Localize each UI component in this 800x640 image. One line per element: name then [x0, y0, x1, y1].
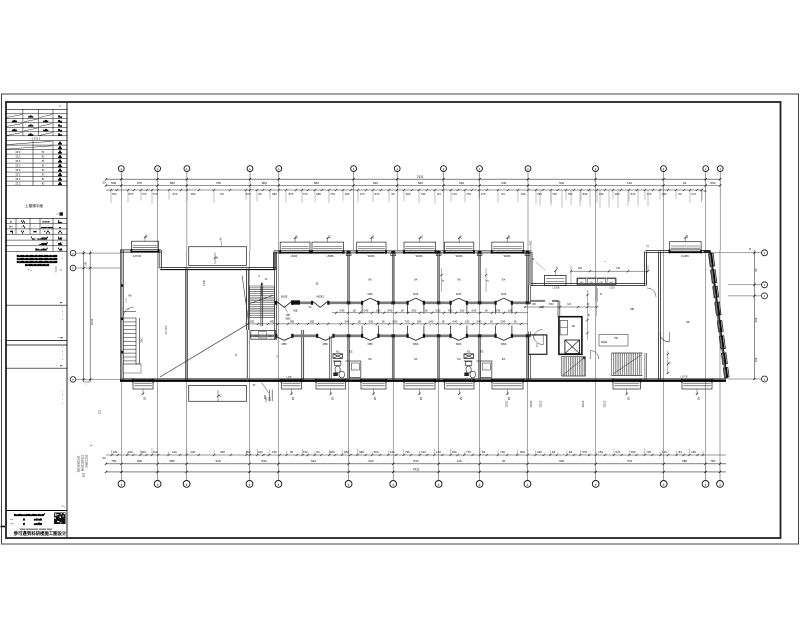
svg-text:▫▫: ▫▫	[604, 261, 606, 263]
svg-text:L3Œ: L3Œ	[286, 376, 292, 379]
svg-text:5Œ: 5Œ	[310, 319, 315, 323]
svg-text:9X: 9X	[414, 357, 418, 361]
svg-text:900: 900	[141, 450, 146, 454]
svg-text:50: 50	[258, 192, 262, 196]
svg-text:L5459: L5459	[326, 254, 334, 258]
svg-text:₂: ₂	[354, 367, 355, 370]
svg-text:570: 570	[289, 192, 294, 196]
svg-text:0ΣΣ: 0ΣΣ	[83, 472, 86, 477]
svg-text:570: 570	[631, 192, 636, 196]
svg-text:▅▆▅▆: ▅▆▅▆	[33, 518, 43, 521]
svg-text:M4Σ: M4Σ	[413, 292, 419, 296]
svg-text:₂: ₂	[485, 367, 486, 370]
svg-text:▅▆▇▆: ▅▆▇▆	[33, 521, 43, 525]
svg-text:16: 16	[424, 308, 428, 312]
svg-text:▆▅▆▆▅▆▅▆▆▅▆▅▆: ▆▅▆▆▅▆▅▆▆▅▆▅▆	[24, 263, 49, 266]
svg-text:W459: W459	[456, 254, 463, 258]
svg-text:W459: W459	[368, 254, 375, 258]
svg-text:9Σ: 9Σ	[686, 320, 690, 324]
svg-text:730: 730	[552, 192, 557, 196]
svg-text:ΣΣ Σ: ΣΣ Σ	[15, 156, 21, 159]
svg-text:50: 50	[391, 192, 395, 196]
svg-text:730: 730	[500, 450, 505, 454]
svg-text:7411: 7411	[413, 468, 420, 472]
svg-text:M4Σ: M4Σ	[501, 292, 507, 296]
svg-text:84: 84	[482, 450, 486, 454]
svg-text:9X: 9X	[457, 277, 461, 281]
svg-text:Ю₂: Ю₂	[467, 351, 470, 354]
svg-text:L535B: L535B	[553, 286, 560, 289]
svg-text:4X: 4X	[265, 279, 268, 281]
svg-text:4Σ0Σ: 4Σ0Σ	[531, 240, 533, 246]
svg-text:ΣΣ Σ: ΣΣ Σ	[15, 151, 21, 154]
svg-text:940: 940	[330, 450, 335, 454]
svg-text:160: 160	[417, 320, 422, 324]
svg-text:770: 770	[466, 450, 471, 454]
svg-text:XX: XX	[145, 234, 149, 238]
svg-text:XX: XX	[371, 235, 375, 239]
svg-text:1X: 1X	[235, 353, 238, 356]
svg-text:9X: 9X	[502, 357, 506, 361]
svg-text:040: 040	[340, 308, 345, 312]
svg-text:ΣΣΣ: ΣΣΣ	[99, 409, 102, 414]
svg-text:730: 730	[646, 450, 651, 454]
svg-text:◄▪: ◄▪	[59, 300, 63, 304]
svg-text:▄▆▄: ▄▆▄	[28, 115, 34, 118]
svg-text:▫: ▫	[62, 253, 63, 256]
svg-text:70Σ0: 70Σ0	[548, 304, 554, 306]
svg-text:180: 180	[344, 450, 349, 454]
svg-text:140: 140	[457, 459, 462, 463]
svg-text:M5Œ1: M5Œ1	[316, 295, 324, 299]
svg-text:170: 170	[452, 192, 457, 196]
svg-text:580: 580	[314, 181, 319, 185]
svg-text:1B: 1B	[697, 397, 701, 400]
svg-text:▫: ▫	[62, 346, 63, 349]
svg-text:1B: 1B	[507, 397, 511, 400]
svg-text:▄▆▄: ▄▆▄	[12, 120, 18, 123]
svg-text:580: 580	[682, 459, 687, 463]
svg-text:050: 050	[501, 320, 506, 324]
svg-text:7411: 7411	[417, 175, 424, 179]
svg-text:1X36: 1X36	[90, 318, 94, 325]
svg-text:ΣΣ Σ: ΣΣ Σ	[15, 165, 21, 168]
svg-text:9Œ0: 9Œ0	[285, 318, 291, 321]
svg-text:84: 84	[569, 450, 573, 454]
svg-text:1B: 1B	[291, 397, 295, 400]
svg-text:XX: XX	[419, 235, 423, 239]
svg-text:▆▄: ▆▄	[57, 129, 62, 132]
svg-text:M5Œ: M5Œ	[281, 295, 288, 299]
svg-text:770: 770	[153, 192, 158, 196]
svg-text:160: 160	[258, 450, 263, 454]
svg-text:32: 32	[683, 181, 687, 185]
svg-text:◄▪: ◄▪	[59, 363, 63, 367]
svg-text:04Σ: 04Σ	[599, 282, 603, 284]
svg-text:18: 18	[441, 320, 445, 324]
svg-text:1B: 1B	[459, 397, 463, 400]
svg-text:▄▆▄: ▄▆▄	[43, 129, 49, 132]
svg-text:▚▘: ▚▘	[20, 231, 25, 234]
svg-text:▪: ▪	[62, 402, 63, 405]
svg-text:570: 570	[137, 181, 142, 185]
svg-text:Ki05a: Ki05a	[601, 341, 608, 344]
svg-text:600: 600	[111, 181, 116, 185]
svg-text:730: 730	[303, 450, 308, 454]
svg-text:800: 800	[137, 459, 142, 463]
svg-text:160: 160	[345, 192, 350, 196]
svg-text:160: 160	[615, 192, 620, 196]
svg-text:84: 84	[552, 450, 556, 454]
svg-text:940: 940	[537, 450, 542, 454]
svg-text:1B: 1B	[373, 397, 377, 400]
svg-text:▪: ▪	[62, 318, 63, 321]
svg-text:750: 750	[112, 192, 117, 196]
svg-text:9X: 9X	[368, 357, 372, 361]
svg-text:XX: XX	[327, 235, 331, 239]
svg-text:04Σ: 04Σ	[609, 282, 613, 284]
svg-text:Σ0Σ0Σ: Σ0Σ0Σ	[507, 400, 509, 407]
svg-text:▆▄: ▆▄	[57, 124, 62, 127]
svg-text:▫: ▫	[85, 384, 86, 387]
svg-text:M5Σ: M5Σ	[323, 342, 329, 346]
svg-text:160: 160	[537, 192, 542, 196]
svg-text:XŒ: XŒ	[250, 319, 255, 323]
svg-text:ЮΣ: ЮΣ	[480, 351, 484, 354]
svg-text:770: 770	[303, 192, 308, 196]
svg-text:▫: ▫	[62, 354, 63, 357]
svg-text:600: 600	[710, 181, 715, 185]
svg-text:18: 18	[400, 308, 404, 312]
svg-text:050: 050	[412, 308, 417, 312]
svg-text:▪▫▪▫▪: ▪▫▪▫▪	[10, 522, 14, 525]
svg-text:18: 18	[352, 308, 356, 312]
svg-text:ΣΣ Σ: ΣΣ Σ	[15, 160, 21, 163]
svg-text:1B: 1B	[571, 325, 574, 328]
svg-text:140: 140	[421, 450, 426, 454]
svg-text:™₂: ™₂	[61, 505, 65, 509]
svg-text:670: 670	[173, 192, 178, 196]
svg-text:940: 940	[272, 192, 277, 196]
svg-text:1X: 1X	[269, 335, 272, 338]
svg-text:ΣΣ Σ: ΣΣ Σ	[15, 169, 21, 172]
svg-text:84: 84	[678, 450, 682, 454]
svg-text:M5Σ: M5Σ	[501, 342, 507, 346]
svg-text:▝▜: ▝▜	[9, 231, 13, 234]
svg-text:L535: L535	[609, 286, 615, 289]
svg-text:770: 770	[647, 192, 652, 196]
svg-text:120: 120	[172, 450, 177, 454]
svg-text:32: 32	[502, 459, 506, 463]
svg-text:▃▃▃ ▃▃▃: ▃▃▃ ▃▃▃	[40, 226, 53, 229]
svg-text:266: 266	[578, 267, 583, 270]
svg-text:700: 700	[448, 308, 453, 312]
svg-text:04Σ: 04Σ	[590, 282, 594, 284]
svg-text:XX: XX	[507, 235, 511, 239]
svg-text:140: 140	[521, 192, 526, 196]
svg-text:580: 580	[170, 459, 175, 463]
svg-text:M5Σ: M5Σ	[413, 342, 419, 346]
svg-text:▪: ▪	[62, 249, 63, 252]
svg-text:940: 940	[452, 450, 457, 454]
svg-text:⊠⊡: ⊠⊡	[9, 226, 13, 229]
svg-text:140: 140	[662, 192, 667, 196]
svg-text:1B: 1B	[626, 397, 630, 400]
svg-text:▀▀: ▀▀	[33, 230, 37, 234]
svg-text:570: 570	[129, 192, 134, 196]
svg-text:18: 18	[484, 308, 488, 312]
svg-text:B: B	[749, 247, 751, 251]
svg-text:M4Σ: M4Σ	[456, 292, 462, 296]
svg-text:840: 840	[418, 181, 423, 185]
svg-text:160: 160	[272, 450, 277, 454]
svg-text:540: 540	[413, 459, 418, 463]
svg-text:770: 770	[330, 192, 335, 196]
svg-text:▫: ▫	[62, 314, 63, 317]
svg-text:940: 940	[583, 192, 588, 196]
svg-text:750: 750	[111, 459, 116, 463]
svg-text:740: 740	[616, 267, 621, 270]
svg-text:ΣΣ Σ: ΣΣ Σ	[15, 174, 21, 177]
svg-text:200: 200	[406, 192, 411, 196]
svg-text:100: 100	[376, 308, 381, 312]
svg-text:180: 180	[359, 450, 364, 454]
svg-text:24X1: 24X1	[142, 337, 144, 343]
svg-text:▄▆▄: ▄▆▄	[12, 129, 18, 132]
svg-text:160: 160	[662, 450, 667, 454]
svg-text:7—: 7—	[28, 268, 33, 272]
svg-text:18: 18	[357, 320, 361, 324]
svg-text:040: 040	[429, 320, 434, 324]
svg-text:570: 570	[246, 192, 251, 196]
svg-text:XXX: XXX	[266, 397, 268, 402]
svg-text:▪: ▪	[62, 241, 63, 244]
svg-text:▫: ▫	[62, 306, 63, 309]
svg-text:730: 730	[599, 192, 604, 196]
svg-text:M5Σ: M5Σ	[368, 342, 374, 346]
svg-text:ΒΣ0ΣΣΒΣ0ΣΣ: ΒΣ0ΣΣΒΣ0ΣΣ	[81, 454, 85, 471]
svg-text:750: 750	[710, 459, 715, 463]
svg-text:▪: ▪	[62, 310, 63, 313]
svg-text:1X7CR: 1X7CR	[133, 254, 141, 258]
svg-text:180: 180	[316, 192, 321, 196]
svg-text:580: 580	[170, 181, 175, 185]
svg-text:ΣΒΣ0ΣΒΣΣ0Σ: ΣΒΣ0ΣΒΣΣ0Σ	[77, 455, 81, 472]
svg-text:M4Σ: M4Σ	[368, 292, 374, 296]
svg-text:540: 540	[559, 181, 564, 185]
svg-text:M5Σ: M5Σ	[282, 342, 288, 346]
svg-text:XX: XX	[459, 235, 463, 239]
svg-text:540: 540	[477, 320, 482, 324]
svg-text:卫: 卫	[535, 343, 538, 347]
svg-text:570: 570	[582, 450, 587, 454]
svg-text:™: ™	[56, 214, 59, 217]
svg-text:▪◄▪: ▪◄▪	[59, 336, 64, 340]
svg-text:140: 140	[627, 181, 632, 185]
svg-text:158: 158	[754, 357, 758, 362]
svg-text:1B: 1B	[219, 394, 222, 397]
svg-text:730: 730	[421, 192, 426, 196]
svg-text:050: 050	[436, 308, 441, 312]
svg-text:◂: ◂	[90, 444, 91, 447]
svg-text:600: 600	[559, 459, 564, 463]
svg-text:160: 160	[128, 450, 133, 454]
svg-text:16: 16	[381, 320, 385, 324]
svg-text:84: 84	[501, 192, 505, 196]
svg-text:W459: W459	[416, 254, 423, 258]
svg-text:04Σ: 04Σ	[580, 282, 584, 284]
svg-text:9X: 9X	[308, 306, 311, 309]
svg-text:040: 040	[496, 308, 501, 312]
svg-text:540: 540	[459, 181, 464, 185]
svg-text:▪▫▪▪: ▪▫▪▪	[10, 518, 14, 521]
svg-text:670: 670	[375, 192, 380, 196]
svg-text:ΣΣ Σ: ΣΣ Σ	[15, 183, 21, 186]
svg-text:160: 160	[191, 192, 196, 196]
svg-text:200: 200	[190, 450, 195, 454]
svg-text:160: 160	[631, 450, 636, 454]
svg-text:ΣΣ Σ: ΣΣ Σ	[15, 178, 21, 181]
svg-text:ЮΣ: ЮΣ	[349, 351, 353, 354]
svg-text:1X: 1X	[246, 298, 248, 301]
svg-text:▪: ▪	[62, 358, 63, 361]
svg-text:540: 540	[388, 308, 393, 312]
svg-text:▪: ▪	[62, 257, 63, 260]
svg-text:L5CR: L5CR	[291, 254, 298, 258]
svg-text:900: 900	[374, 450, 379, 454]
svg-text:4Œ: 4Œ	[270, 319, 275, 323]
svg-text:2X XXX: 2X XXX	[165, 325, 168, 334]
svg-text:50: 50	[754, 268, 758, 272]
svg-text:9X: 9X	[502, 277, 506, 281]
svg-text:9X: 9X	[457, 357, 461, 361]
svg-text:940: 940	[220, 450, 225, 454]
svg-text:参可遇到科研楼施工图设计: 参可遇到科研楼施工图设计	[14, 530, 67, 537]
svg-text:▆▄: ▆▄	[57, 120, 62, 123]
svg-text:50: 50	[290, 450, 294, 454]
svg-text:940: 940	[501, 181, 506, 185]
svg-text:9X: 9X	[414, 277, 418, 281]
svg-text:Σ0ΒΣΣΣ0Σ: Σ0ΒΣΣΣ0Σ	[85, 454, 89, 467]
svg-text:170: 170	[691, 192, 696, 196]
svg-text:50: 50	[678, 192, 682, 196]
svg-text:570: 570	[615, 450, 620, 454]
svg-text:Œ: Œ	[316, 282, 319, 286]
svg-text:840: 840	[261, 459, 266, 463]
svg-text:▄▆▄: ▄▆▄	[43, 120, 49, 123]
svg-text:Σ0Σ0Σ: Σ0Σ0Σ	[583, 400, 585, 407]
svg-text:900: 900	[520, 450, 525, 454]
svg-text:上楼梯平面: 上楼梯平面	[25, 203, 43, 208]
svg-text:▪: ▪	[62, 350, 63, 353]
svg-text:700: 700	[405, 320, 410, 324]
svg-text:750: 750	[568, 192, 573, 196]
svg-text:040: 040	[364, 308, 369, 312]
svg-text:750: 750	[614, 337, 619, 340]
svg-text:940: 940	[368, 459, 373, 463]
svg-text:▫: ▫	[700, 247, 701, 250]
svg-text:▄▆▄: ▄▆▄	[28, 124, 34, 127]
svg-text:Σ0Σ0Σ: Σ0Σ0Σ	[605, 400, 607, 407]
svg-text:9X: 9X	[368, 277, 372, 281]
svg-text:570: 570	[627, 459, 632, 463]
svg-text:Ю₂: Ю₂	[336, 351, 339, 354]
svg-text:Σ0Σ0Σ: Σ0Σ0Σ	[541, 400, 543, 407]
svg-text:750: 750	[216, 181, 221, 185]
svg-text:1X: 1X	[669, 361, 671, 364]
svg-text:140: 140	[390, 450, 395, 454]
svg-text:XX: XX	[685, 235, 689, 239]
svg-text:020: 020	[269, 396, 272, 401]
svg-text:940: 940	[216, 459, 221, 463]
svg-text:4X: 4X	[219, 237, 222, 240]
svg-text:84: 84	[437, 192, 441, 196]
svg-text:120: 120	[112, 450, 117, 454]
svg-text:1B: 1B	[419, 397, 423, 400]
svg-text:▆▄: ▆▄	[57, 133, 62, 136]
svg-text:040: 040	[472, 308, 477, 312]
svg-text:◆◆◆◆: ◆◆◆◆	[42, 220, 51, 223]
svg-text:▫: ▫	[62, 237, 63, 240]
svg-text:368: 368	[754, 317, 758, 322]
svg-text:▫: ▫	[62, 398, 63, 401]
svg-text:940: 940	[373, 181, 378, 185]
svg-text:16: 16	[513, 320, 517, 324]
svg-text:M5Σ: M5Σ	[456, 342, 462, 346]
svg-text:9\: 9\	[600, 293, 602, 296]
svg-text:▫: ▫	[62, 229, 63, 232]
svg-text:18: 18	[489, 320, 493, 324]
svg-text:170: 170	[360, 192, 365, 196]
svg-text:050: 050	[393, 320, 398, 324]
svg-text:Σ0Σ0Σ: Σ0Σ0Σ	[531, 400, 533, 407]
svg-text:XX: XX	[295, 235, 299, 239]
svg-text:84: 84	[220, 192, 224, 196]
svg-text:170: 170	[481, 192, 486, 196]
svg-text:770: 770	[466, 192, 471, 196]
svg-text:040: 040	[453, 320, 458, 324]
svg-text:1B: 1B	[143, 397, 147, 400]
svg-text:▪: ▪	[62, 394, 63, 397]
svg-text:L007B: L007B	[681, 376, 688, 379]
svg-text:◇▚: ◇▚	[21, 226, 25, 229]
svg-text:160: 160	[153, 450, 158, 454]
svg-text:100: 100	[465, 320, 470, 324]
svg-text:160: 160	[460, 308, 465, 312]
svg-text:▆▄: ▆▄	[57, 115, 62, 118]
svg-text:540: 540	[311, 459, 316, 463]
svg-text:▪: ▪	[35, 226, 36, 229]
svg-text:050: 050	[369, 320, 374, 324]
svg-text:9Œ: 9Œ	[293, 309, 298, 313]
svg-text:FL459: FL459	[681, 254, 689, 258]
svg-text:▃: ▃	[58, 226, 61, 229]
svg-text:▘▞▚: ▘▞▚	[43, 231, 50, 234]
svg-text:W459: W459	[504, 254, 511, 258]
svg-text:160: 160	[691, 450, 696, 454]
svg-text:2B: 2B	[84, 262, 88, 266]
svg-text:1B: 1B	[330, 397, 334, 400]
svg-text:1 9 5 1: 1 9 5 1	[31, 137, 41, 141]
svg-text:▫: ▫	[62, 390, 63, 393]
svg-text:770: 770	[142, 192, 147, 196]
svg-text:730: 730	[405, 450, 410, 454]
svg-text:▪: ▪	[62, 233, 63, 236]
svg-text:9B: 9B	[630, 307, 634, 311]
svg-text:540: 540	[345, 320, 350, 324]
svg-text:100: 100	[508, 308, 513, 312]
svg-text:▫: ▫	[62, 245, 63, 248]
